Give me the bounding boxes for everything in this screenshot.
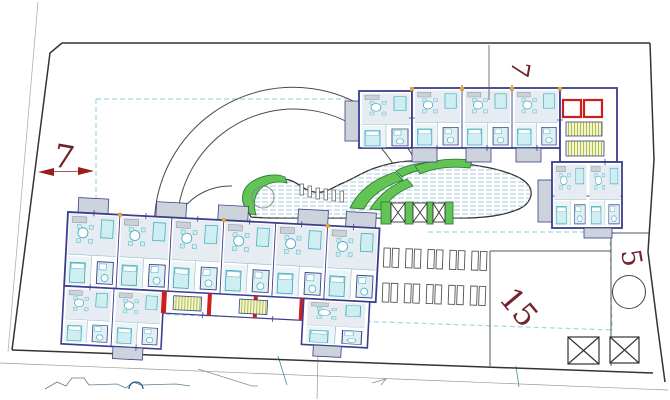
pergola-strip xyxy=(381,202,453,224)
stairs-south xyxy=(239,299,268,314)
top-setback-label: 7 xyxy=(504,59,535,80)
pool-deck xyxy=(240,155,540,225)
site-plan-drawing: 7 7 15 5 xyxy=(0,0,670,400)
stairs-south xyxy=(173,296,202,311)
terrace xyxy=(345,101,359,141)
parking-row-2 xyxy=(382,283,486,306)
dimension-arrow-right xyxy=(78,167,94,175)
balconies-north xyxy=(412,148,541,162)
parking-stalls xyxy=(382,248,487,306)
terrace xyxy=(538,180,552,222)
plot5-label: 5 xyxy=(614,247,648,269)
plot15-label: 15 xyxy=(492,281,545,334)
balcony xyxy=(313,345,342,357)
balcony xyxy=(112,347,143,361)
crossed-boxes xyxy=(568,337,639,364)
parking-row-1 xyxy=(383,248,487,271)
site-plan-canvas: 7 7 15 5 xyxy=(0,0,670,400)
building-south xyxy=(60,197,380,372)
plot5-circle xyxy=(613,276,646,309)
left-setback-dimension: 7 xyxy=(38,136,94,177)
balcony xyxy=(584,228,612,238)
